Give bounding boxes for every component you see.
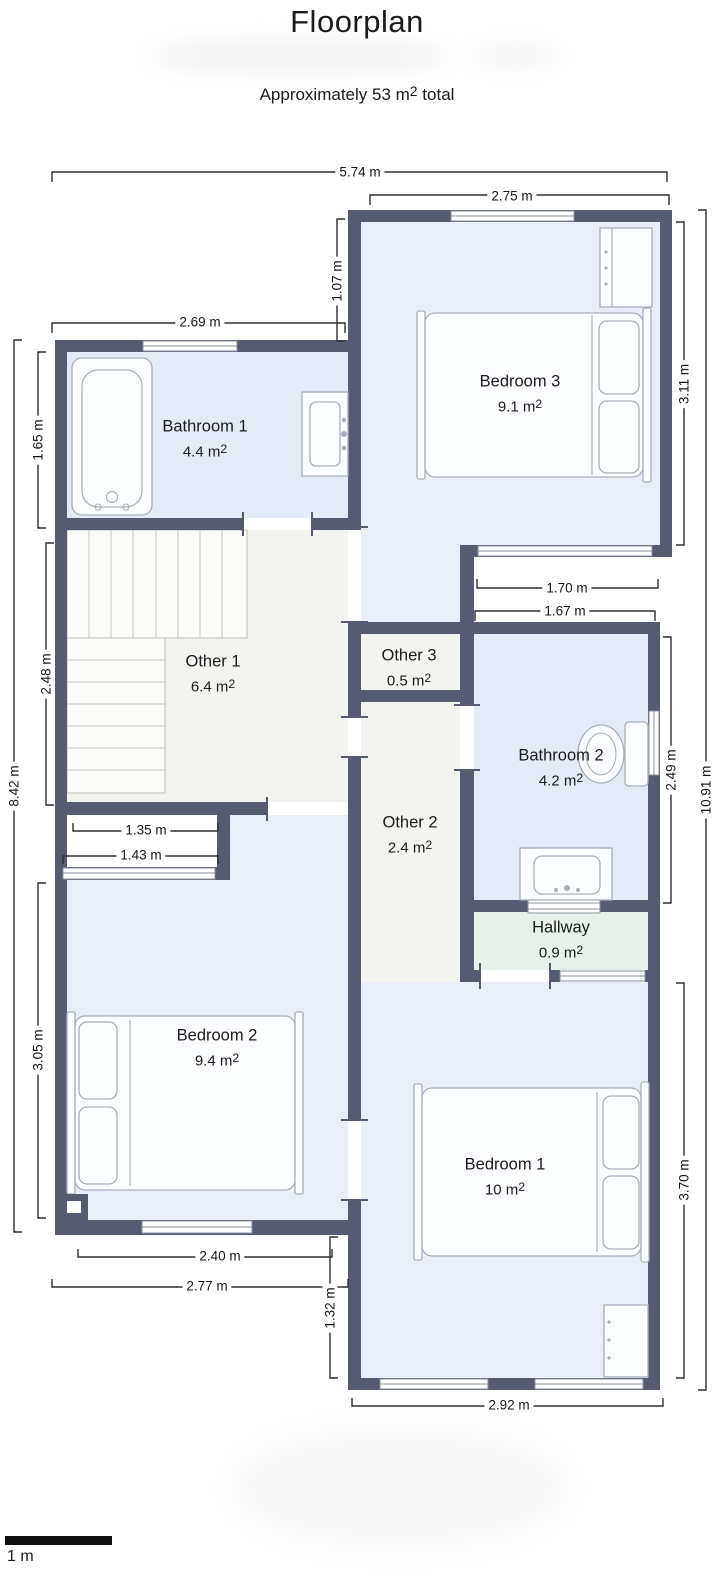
room-label-other-1: Other 1 6.4 m2 [185, 650, 240, 699]
dimension-label: 1.07 m [330, 256, 345, 305]
dimension-label: 3.11 m [677, 360, 692, 408]
sink [302, 392, 348, 476]
room-label-bedroom-3: Bedroom 3 9.1 m2 [480, 370, 561, 419]
dimension-label: 1.67 m [540, 604, 589, 619]
room-label-bedroom-1: Bedroom 1 10 m2 [465, 1153, 546, 1202]
dimension-label: 1.35 m [121, 823, 170, 838]
page-subtitle: Approximately 53 m2 total [260, 85, 455, 105]
dimension-label: 8.42 m [7, 761, 22, 810]
dimension-label: 3.05 m [31, 1025, 46, 1074]
chimney-pillar [60, 1194, 88, 1220]
dimension-label: 1.43 m [116, 848, 165, 863]
dimension-label: 2.77 m [182, 1279, 231, 1294]
room-label-bathroom-1: Bathroom 1 4.4 m2 [162, 415, 247, 464]
wardrobe [600, 228, 652, 307]
dimension-label: 3.70 m [677, 1155, 692, 1204]
dimension-label: 2.75 m [487, 189, 536, 204]
floorplan-page: Floorplan Approximately 53 m2 total Bedr… [0, 0, 720, 1584]
page-title: Floorplan [290, 4, 424, 40]
room-label-hallway: Hallway 0.9 m2 [532, 916, 590, 965]
room-label-bedroom-2: Bedroom 2 9.4 m2 [177, 1024, 258, 1073]
dimension-label: 1.65 m [31, 415, 46, 464]
room-label-other-2: Other 2 2.4 m2 [382, 811, 437, 860]
room-label-bathroom-2: Bathroom 2 4.2 m2 [518, 744, 603, 793]
scale-bar [5, 1536, 112, 1545]
scale-bar-label: 1 m [7, 1548, 34, 1566]
dimension-label: 5.74 m [335, 165, 384, 180]
wardrobe [604, 1305, 648, 1377]
dimension-label: 2.69 m [175, 315, 224, 330]
floorplan-drawing [0, 0, 720, 1584]
dimension-label: 2.49 m [664, 745, 679, 794]
sink [520, 848, 612, 900]
dimension-label: 2.48 m [39, 649, 54, 698]
bathtub [72, 358, 152, 515]
dimension-label: 10.91 m [699, 762, 714, 819]
dimension-label: 2.92 m [484, 1398, 533, 1413]
dimension-label: 1.70 m [542, 581, 591, 596]
dimension-label: 1.32 m [323, 1283, 338, 1332]
dimension-label: 2.40 m [195, 1249, 244, 1264]
room-label-other-3: Other 3 0.5 m2 [381, 644, 436, 693]
